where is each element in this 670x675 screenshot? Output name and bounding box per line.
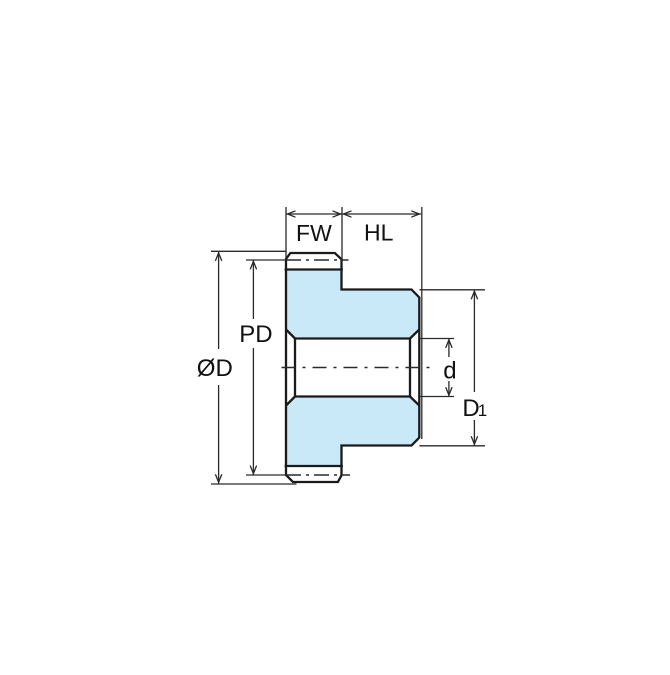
- svg-text:1: 1: [478, 401, 487, 420]
- svg-text:ØD: ØD: [197, 355, 233, 382]
- svg-text:PD: PD: [239, 321, 272, 348]
- svg-text:d: d: [443, 358, 456, 385]
- svg-text:HL: HL: [364, 220, 394, 246]
- svg-text:FW: FW: [296, 220, 332, 246]
